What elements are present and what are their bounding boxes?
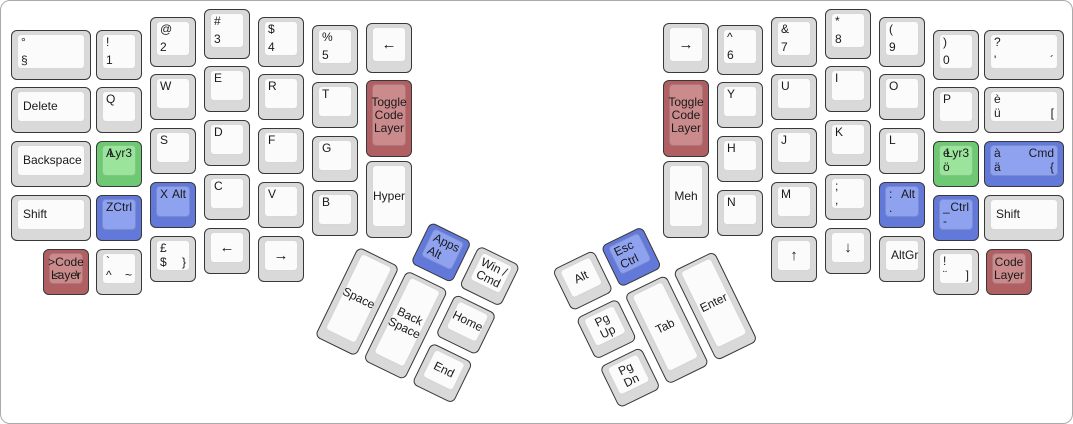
key-label-code-layer-left-c: >Code Layer — [50, 254, 82, 283]
key-label-semicolon-bl: , — [835, 193, 838, 208]
keycap-surface: #3 — [210, 13, 244, 48]
key-label-s-tl: S — [160, 133, 168, 148]
keycap-surface: `^~ — [102, 253, 136, 284]
keycap-surface: )0 — [939, 34, 973, 69]
keycap-surface: Hyper — [372, 165, 406, 227]
keycap-surface: Code Layer — [992, 253, 1026, 284]
key-label-a-grave-cmd-tl: à — [994, 146, 1001, 161]
key-label-n-tl: N — [727, 195, 736, 210]
key-num9[interactable]: (9 — [879, 17, 925, 67]
key-num1[interactable]: !1 — [96, 30, 142, 80]
key-label-l-tl: L — [889, 133, 896, 148]
key-label-num3-tl: # — [214, 14, 221, 29]
keycap-surface: ↓ — [831, 232, 865, 263]
key-apostrophe[interactable]: ?'´ — [984, 30, 1064, 80]
key-label-num0-bl: 0 — [943, 53, 950, 68]
key-label-o-tl: O — [889, 79, 898, 94]
keycap-surface: :Alt. — [885, 186, 919, 217]
key-label-toggle-code-layer-right-c: Toggle Code Layer — [670, 85, 702, 145]
keycap-surface: B — [318, 194, 352, 225]
key-label-g-tl: G — [322, 141, 331, 156]
keycap-surface: Shift — [990, 199, 1058, 230]
keycap-surface: O — [885, 78, 919, 109]
keycap-surface: → — [264, 240, 298, 271]
key-num6[interactable]: ^6 — [717, 25, 763, 75]
key-end[interactable]: End — [412, 342, 474, 404]
keycap-surface: U — [777, 78, 811, 109]
key-label-num9-tl: ( — [889, 22, 893, 37]
key-label-shift-right-c: Shift — [996, 200, 1057, 229]
key-label-b-tl: B — [322, 195, 330, 210]
key-num7[interactable]: &7 — [771, 17, 817, 67]
key-label-code-layer-right-c: Code Layer — [993, 254, 1025, 283]
key-label-diaeresis-bl: ¨ — [943, 268, 947, 283]
keycap-surface: !¨] — [939, 253, 973, 284]
key-label-altgr-c: AltGr — [891, 241, 918, 270]
key-a-grave-cmd[interactable]: àCmdä{ — [984, 141, 1064, 187]
keycap-surface: Q — [102, 91, 136, 122]
key-t[interactable]: T — [312, 82, 358, 128]
key-label-sect-bl: § — [21, 53, 28, 68]
key-label-t-tl: T — [322, 87, 329, 102]
key-j[interactable]: J — [771, 128, 817, 174]
keycap-surface: M — [777, 186, 811, 217]
keycap-surface: N — [723, 194, 757, 225]
key-up-arrow[interactable]: ↑ — [771, 236, 817, 282]
key-label-y-tl: Y — [727, 87, 735, 102]
key-label-underscore-ctrl-tr: Ctrl — [950, 200, 969, 215]
keycap-surface: T — [318, 86, 352, 117]
key-label-c-tl: C — [214, 179, 223, 194]
key-n[interactable]: N — [717, 190, 763, 236]
keycap-surface: ↑ — [777, 240, 811, 271]
key-label-r-tl: R — [268, 79, 277, 94]
key-label-colon-alt-tl: : — [889, 187, 892, 202]
keycap-surface: Meh — [669, 165, 703, 227]
key-hyper[interactable]: Hyper — [366, 161, 412, 238]
key-i[interactable]: I — [825, 66, 871, 112]
key-label-end-c: End — [423, 350, 464, 390]
keycap-surface: ?'´ — [990, 34, 1058, 69]
key-s[interactable]: S — [150, 128, 196, 174]
key-dollar[interactable]: £$} — [150, 236, 196, 282]
key-o[interactable]: O — [879, 74, 925, 120]
key-label-a-grave-cmd-br: { — [1050, 160, 1054, 175]
keycap-surface: J — [777, 132, 811, 163]
keycap-surface: H — [723, 140, 757, 171]
keycap-surface: @2 — [156, 21, 190, 56]
key-u[interactable]: U — [771, 74, 817, 120]
key-label-h-tl: H — [727, 141, 736, 156]
keycap-surface: D — [210, 124, 244, 155]
key-pgdn[interactable]: Pg Dn — [599, 347, 661, 409]
keycap-surface: S — [156, 132, 190, 163]
keycap-surface: èü[ — [990, 91, 1058, 122]
keycap-surface: XAlt — [156, 186, 190, 217]
key-num8[interactable]: *8 — [825, 9, 871, 59]
key-label-x-alt-tr: Alt — [172, 187, 186, 202]
keycap-surface: Home — [445, 300, 489, 343]
keycap-surface: Toggle Code Layer — [372, 84, 406, 146]
keycap-surface: V — [264, 186, 298, 217]
keycap-surface: EscCtrl — [608, 232, 652, 275]
key-right-arrow-top[interactable]: → — [663, 23, 709, 73]
key-label-j-tl: J — [781, 133, 787, 148]
key-label-pgup-c: Pg Up — [584, 306, 625, 346]
key-label-sect-tl: ° — [21, 35, 26, 50]
key-label-colon-alt-tr: Alt — [901, 187, 915, 202]
key-label-num1-tl: ! — [106, 35, 109, 50]
key-z-ctrl[interactable]: ZCtrl — [96, 195, 142, 241]
key-label-left-arrow-top-c: ← — [373, 28, 405, 61]
key-altgr[interactable]: AltGr — [879, 236, 925, 282]
key-shift-left[interactable]: Shift — [11, 195, 91, 241]
keycap-surface: AppsAlt — [421, 228, 465, 271]
key-a-lyr3[interactable]: ALyr3 — [96, 141, 142, 187]
key-label-p-tl: P — [943, 92, 951, 107]
key-label-pgdn-c: Pg Dn — [608, 354, 649, 394]
key-label-dollar-tl: £ — [160, 241, 167, 256]
key-label-e-grave-tl: è — [994, 92, 1001, 107]
key-label-num7-bl: 7 — [781, 40, 788, 55]
key-label-num2-bl: 2 — [160, 40, 167, 55]
key-label-num2-tl: @ — [160, 22, 172, 37]
key-label-e-acute-lyr3-bl: ö — [943, 160, 950, 175]
key-pgup[interactable]: Pg Up — [576, 298, 638, 360]
key-label-win-cmd-c: Win / Cmd — [470, 253, 511, 293]
key-label-num9-bl: 9 — [889, 40, 896, 55]
key-label-num8-tl: * — [835, 14, 840, 29]
key-code-layer-left[interactable]: <\>Code Layer — [43, 249, 89, 295]
key-e[interactable]: E — [204, 66, 250, 112]
keycap-surface: éLyr3ö — [939, 145, 973, 176]
key-down-arrow[interactable]: ↓ — [825, 228, 871, 274]
keycap-surface: G — [318, 140, 352, 171]
key-label-z-ctrl-tr: Ctrl — [113, 200, 132, 215]
key-r[interactable]: R — [258, 74, 304, 120]
keycap-surface: Alt — [559, 256, 603, 299]
key-label-num7-tl: & — [781, 22, 789, 37]
key-alt-thumb[interactable]: Alt — [552, 250, 614, 312]
key-label-e-tl: E — [214, 71, 222, 86]
key-toggle-code-layer-left[interactable]: Toggle Code Layer — [366, 80, 412, 157]
key-d[interactable]: D — [204, 120, 250, 166]
keycap-surface: ← — [372, 27, 406, 62]
keycap-surface: ;, — [831, 178, 865, 209]
keycap-surface: → — [669, 27, 703, 62]
key-label-apostrophe-tl: ? — [994, 35, 1001, 50]
keycap-surface: _Ctrl- — [939, 199, 973, 230]
key-apps-alt[interactable]: AppsAlt — [410, 222, 472, 284]
keycap-surface: £$} — [156, 240, 190, 271]
key-label-apostrophe-bl: ' — [994, 53, 996, 68]
keycap-surface: Pg Up — [583, 305, 627, 348]
keycap-surface: Pg Dn — [606, 353, 650, 396]
key-g[interactable]: G — [312, 136, 358, 182]
key-label-k-tl: K — [835, 125, 843, 140]
keycap-surface: I — [831, 70, 865, 101]
key-label-num1-bl: 1 — [106, 53, 113, 68]
keycap-surface: AltGr — [885, 240, 919, 271]
key-label-semicolon-tl: ; — [835, 179, 838, 194]
key-label-dollar-br: } — [182, 255, 186, 270]
key-label-right-arrow-bottom-c: → — [265, 241, 297, 270]
keycap-surface: ALyr3 — [102, 145, 136, 176]
key-label-num5-bl: 5 — [322, 48, 329, 63]
key-label-home-c: Home — [447, 301, 488, 341]
key-label-num3-bl: 3 — [214, 32, 221, 47]
keycap-surface: Shift — [17, 199, 85, 230]
key-label-right-arrow-top-c: → — [670, 28, 702, 61]
key-underscore-ctrl[interactable]: _Ctrl- — [933, 195, 979, 241]
key-label-underscore-ctrl-tl: _ — [943, 200, 950, 215]
key-colon-alt[interactable]: :Alt. — [879, 182, 925, 228]
key-circumflex[interactable]: `^~ — [96, 249, 142, 295]
keycap-surface: Delete — [17, 91, 85, 122]
key-f[interactable]: F — [258, 128, 304, 174]
key-label-num0-tl: ) — [943, 35, 947, 50]
key-c[interactable]: C — [204, 174, 250, 220]
key-label-meh-c: Meh — [670, 166, 702, 226]
key-e-acute-lyr3[interactable]: éLyr3ö — [933, 141, 979, 187]
key-toggle-code-layer-right[interactable]: Toggle Code Layer — [663, 80, 709, 157]
key-left-arrow-top[interactable]: ← — [366, 23, 412, 73]
key-x-alt[interactable]: XAlt — [150, 182, 196, 228]
key-num2[interactable]: @2 — [150, 17, 196, 67]
key-label-i-tl: I — [835, 71, 838, 86]
key-num0[interactable]: )0 — [933, 30, 979, 80]
key-m[interactable]: M — [771, 182, 817, 228]
key-left-arrow-bottom[interactable]: ← — [204, 228, 250, 274]
keycap-surface: %5 — [318, 29, 352, 64]
key-p[interactable]: P — [933, 87, 979, 133]
keycap-surface: L — [885, 132, 919, 163]
key-shift-right[interactable]: Shift — [984, 195, 1064, 241]
key-label-e-grave-br: [ — [1051, 106, 1054, 121]
key-label-num6-tl: ^ — [727, 30, 733, 45]
key-label-num6-bl: 6 — [727, 48, 734, 63]
key-k[interactable]: K — [825, 120, 871, 166]
key-label-x-alt-tl: X — [160, 187, 168, 202]
key-label-circumflex-br: ~ — [125, 268, 132, 283]
key-e-grave[interactable]: èü[ — [984, 87, 1064, 133]
key-h[interactable]: H — [717, 136, 763, 182]
keycap-surface: ^6 — [723, 29, 757, 64]
key-diaeresis[interactable]: !¨] — [933, 249, 979, 295]
keycap-surface: &7 — [777, 21, 811, 56]
key-label-hyper-c: Hyper — [373, 166, 405, 226]
key-label-up-arrow-c: ↑ — [778, 241, 810, 270]
key-label-diaeresis-tl: ! — [943, 254, 946, 269]
key-label-apostrophe-br: ´ — [1050, 53, 1054, 68]
keycap-surface: Y — [723, 86, 757, 117]
key-label-num4-bl: 4 — [268, 40, 275, 55]
keycap-surface: *8 — [831, 13, 865, 48]
key-label-m-tl: M — [781, 187, 791, 202]
key-label-dollar-bl: $ — [160, 255, 167, 270]
keycap-surface: <\>Code Layer — [49, 253, 83, 284]
key-code-layer-right[interactable]: Code Layer — [986, 249, 1032, 295]
keyboard-layout-canvas: °§DeleteBackspaceShift<\>Code Layer!1QAL… — [0, 0, 1073, 424]
key-label-circumflex-tl: ` — [106, 254, 110, 269]
keycap-surface: E — [210, 70, 244, 101]
key-home[interactable]: Home — [435, 294, 497, 356]
key-sect[interactable]: °§ — [11, 30, 91, 80]
key-label-circumflex-bl: ^ — [106, 268, 112, 283]
key-label-delete-c: Delete — [23, 92, 84, 121]
keycap-surface: !1 — [102, 34, 136, 69]
keycap-surface: K — [831, 124, 865, 155]
keycap-surface: °§ — [17, 34, 85, 69]
keycap-surface: Toggle Code Layer — [669, 84, 703, 146]
key-num4[interactable]: $4 — [258, 17, 304, 67]
key-label-down-arrow-c: ↓ — [832, 233, 864, 262]
keycap-surface: C — [210, 178, 244, 209]
key-label-alt-thumb-c: Alt — [560, 257, 601, 297]
key-label-u-tl: U — [781, 79, 790, 94]
key-label-num5-tl: % — [322, 30, 333, 45]
keycap-surface: àCmdä{ — [990, 145, 1058, 176]
key-label-num8-bl: 8 — [835, 32, 842, 47]
key-b[interactable]: B — [312, 190, 358, 236]
key-label-diaeresis-br: ] — [966, 268, 969, 283]
key-y[interactable]: Y — [717, 82, 763, 128]
key-label-colon-alt-bl: . — [889, 201, 892, 216]
key-label-w-tl: W — [160, 79, 171, 94]
key-semicolon[interactable]: ;, — [825, 174, 871, 220]
key-label-a-grave-cmd-tr: Cmd — [1029, 146, 1054, 161]
key-label-a-grave-cmd-bl: ä — [994, 160, 1001, 175]
key-label-backspace-c: Backspace — [23, 146, 84, 175]
key-label-v-tl: V — [268, 187, 276, 202]
key-q[interactable]: Q — [96, 87, 142, 133]
key-num3[interactable]: #3 — [204, 9, 250, 59]
keycap-surface: ← — [210, 232, 244, 263]
key-l[interactable]: L — [879, 128, 925, 174]
key-w[interactable]: W — [150, 74, 196, 120]
key-label-d-tl: D — [214, 125, 223, 140]
key-label-shift-left-c: Shift — [23, 200, 84, 229]
key-label-underscore-ctrl-bl: - — [943, 214, 947, 229]
key-meh[interactable]: Meh — [663, 161, 709, 238]
key-delete[interactable]: Delete — [11, 87, 91, 133]
key-right-arrow-bottom[interactable]: → — [258, 236, 304, 282]
key-label-f-tl: F — [268, 133, 275, 148]
key-backspace[interactable]: Backspace — [11, 141, 91, 187]
keycap-surface: $4 — [264, 21, 298, 56]
key-win-cmd[interactable]: Win / Cmd — [459, 245, 521, 307]
key-label-num4-tl: $ — [268, 22, 275, 37]
keycap-surface: Win / Cmd — [469, 252, 513, 295]
keycap-surface: End — [422, 349, 466, 392]
key-label-e-grave-bl: ü — [994, 106, 1001, 121]
key-label-z-ctrl-tl: Z — [106, 200, 113, 215]
keycap-surface: ZCtrl — [102, 199, 136, 230]
key-v[interactable]: V — [258, 182, 304, 228]
key-label-e-acute-lyr3-tr: Lyr3 — [946, 146, 969, 161]
keycap-surface: P — [939, 91, 973, 122]
key-esc-ctrl[interactable]: EscCtrl — [601, 226, 663, 288]
key-label-toggle-code-layer-left-c: Toggle Code Layer — [373, 85, 405, 145]
keycap-surface: (9 — [885, 21, 919, 56]
keycap-surface: W — [156, 78, 190, 109]
key-label-q-tl: Q — [106, 92, 115, 107]
keycap-surface: Backspace — [17, 145, 85, 176]
key-label-a-lyr3-tr: Lyr3 — [109, 146, 132, 161]
keycap-surface: R — [264, 78, 298, 109]
key-label-left-arrow-bottom-c: ← — [211, 233, 243, 262]
key-num5[interactable]: %5 — [312, 25, 358, 75]
keycap-surface: F — [264, 132, 298, 163]
